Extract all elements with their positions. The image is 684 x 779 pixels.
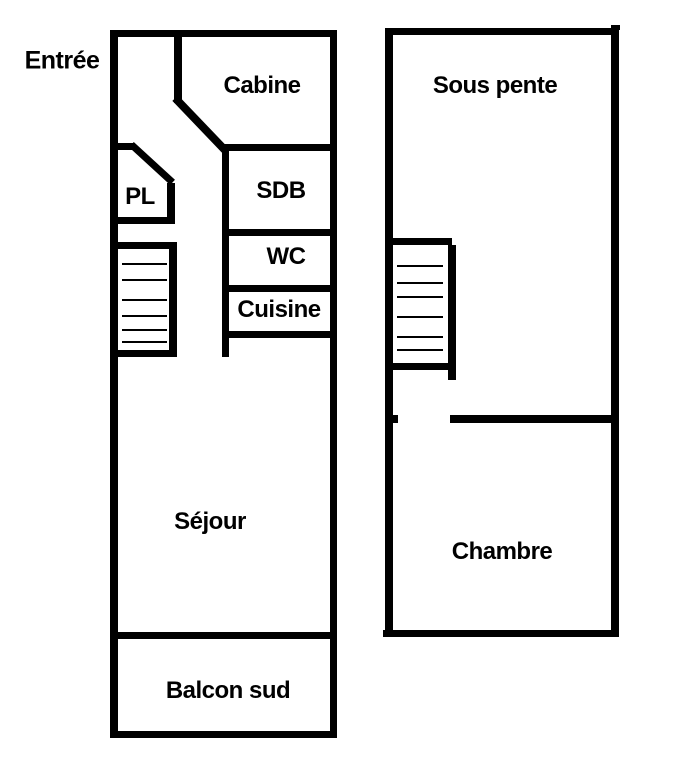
l2-stair-tread (397, 265, 443, 267)
diagonal-walls-overlay (0, 0, 684, 779)
l2-wall-outer-top (385, 28, 619, 35)
floor-plan-canvas: Entrée Cabine PL SDB WC Cuisine Séjour B… (0, 0, 684, 779)
l2-stair-tread (397, 296, 443, 298)
l2-staircase-bottom (388, 363, 448, 370)
l2-stair-tread (397, 316, 443, 318)
l2-wall-outer-left (385, 28, 393, 637)
l1-cabine-diagonal-wall (178, 101, 222, 147)
room-label-sdb: SDB (256, 179, 305, 203)
l2-corner-tick (611, 25, 620, 30)
l1-wall-column-left (222, 144, 229, 357)
l1-wall-sdb-bottom (222, 229, 337, 236)
l2-staircase-right (448, 245, 456, 380)
l2-divider-stub (385, 415, 398, 423)
room-label-cuisine: Cuisine (237, 298, 320, 322)
l2-staircase-top (388, 238, 452, 245)
l1-wall-wc-bottom (222, 285, 337, 292)
l1-wall-entry-corridor (174, 30, 182, 103)
l1-staircase-top (110, 242, 177, 249)
room-label-wc: WC (267, 245, 306, 269)
entry-label: Entrée (25, 49, 100, 74)
l1-wall-notch (112, 371, 118, 381)
room-label-chambre: Chambre (452, 540, 553, 564)
l1-wall-outer-top (110, 30, 337, 37)
l1-wall-cuisine-bottom (222, 331, 337, 338)
l1-stair-tread (122, 315, 167, 317)
l1-stair-tread (122, 341, 167, 343)
l1-staircase-bottom (110, 350, 176, 357)
l1-stair-tread (122, 263, 167, 265)
l2-stair-tread (397, 282, 443, 284)
room-label-balcon: Balcon sud (166, 679, 290, 703)
l1-wall-balcony-bottom (110, 731, 337, 738)
l1-wall-pl-top (110, 143, 135, 150)
l1-stair-tread (122, 299, 167, 301)
room-label-sejour: Séjour (174, 510, 246, 534)
l2-wall-outer-right (611, 28, 619, 637)
room-label-cabine: Cabine (223, 74, 300, 98)
room-label-sous-pente: Sous pente (433, 74, 557, 98)
l1-wall-sejour-bottom (110, 632, 337, 639)
l1-wall-pl-bottom (110, 217, 175, 224)
l2-wall-outer-bottom (383, 630, 619, 637)
l2-stair-tread (397, 336, 443, 338)
l1-stair-tread (122, 329, 167, 331)
l1-wall-cabine-bottom (222, 144, 337, 151)
l1-staircase-right (169, 242, 177, 357)
l1-wall-balcony-right (330, 632, 337, 738)
l2-divider-main (450, 415, 619, 423)
room-label-pl: PL (125, 185, 155, 209)
l1-pl-diagonal-wall (134, 147, 170, 180)
l2-stair-tread (397, 349, 443, 351)
l1-stair-tread (122, 279, 167, 281)
l1-wall-pl-stub (167, 183, 175, 217)
